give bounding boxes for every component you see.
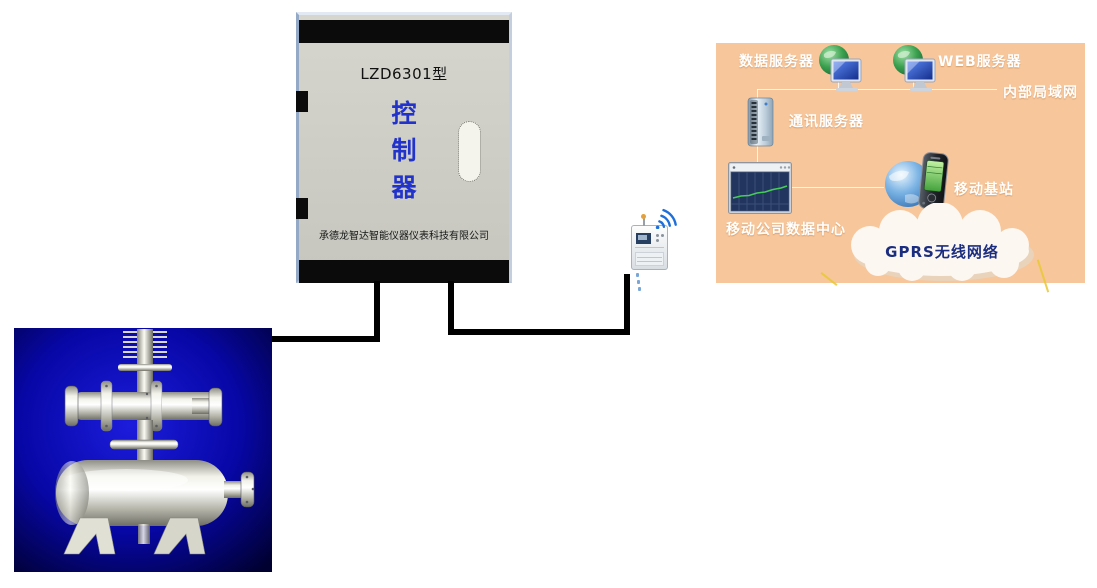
meter-lower-panel <box>635 252 664 266</box>
meter-button-icon <box>656 234 659 237</box>
label-data-center: 移动公司数据中心 <box>726 219 846 239</box>
company-name-label: 承德龙智达智能仪器仪表科技有限公司 <box>299 227 509 242</box>
meter-antenna-icon <box>643 218 645 226</box>
label-base-station: 移动基站 <box>954 179 1014 199</box>
meter-divider <box>637 257 662 258</box>
label-intranet: 内部局域网 <box>1003 82 1078 102</box>
meter-screen-glow <box>638 235 647 240</box>
cable-cabinet-to-meter-vertical <box>448 281 454 335</box>
signal-dash <box>636 273 639 277</box>
web-server-icon <box>892 44 936 92</box>
data-server-icon <box>818 44 862 92</box>
meter-divider <box>637 261 662 262</box>
label-data-server: 数据服务器 <box>739 51 814 71</box>
cable-meter-drop <box>624 274 630 335</box>
signal-dash <box>637 280 640 284</box>
cabinet-handle <box>458 121 481 182</box>
wireless-signal-icon <box>654 203 682 229</box>
data-center-icon <box>728 162 792 214</box>
cabinet-title-char: 器 <box>391 175 416 200</box>
meter-antenna-tip <box>641 214 646 219</box>
controller-cabinet: LZD6301型 控 制 器 承德龙智达智能仪器仪表科技有限公司 <box>296 12 512 283</box>
label-gprs-cloud: GPRS无线网络 <box>842 203 1042 287</box>
label-web-server: WEB服务器 <box>938 51 1022 71</box>
meter-button-icon <box>661 234 664 237</box>
cabinet-top-bar <box>299 20 509 43</box>
cable-cabinet-to-meter-horizontal <box>448 329 630 335</box>
flow-meter-image <box>14 328 272 572</box>
datacenter-basestation-line <box>792 187 884 188</box>
cabinet-bottom-bar <box>299 260 509 283</box>
system-diagram: LZD6301型 控 制 器 承德龙智达智能仪器仪表科技有限公司 <box>0 0 1097 588</box>
meter-button-icon <box>656 239 659 242</box>
meter-screen <box>636 233 651 244</box>
wireless-meter-device <box>631 225 668 270</box>
cabinet-title-char: 制 <box>391 138 416 163</box>
lan-line <box>757 89 997 90</box>
comm-server-icon <box>742 96 780 148</box>
label-comm-server: 通讯服务器 <box>789 111 864 131</box>
cabinet-hinge-icon <box>296 198 308 219</box>
cabinet-model-label: LZD6301型 <box>299 63 509 84</box>
cabinet-title-char: 控 <box>391 101 416 126</box>
lightning-streak-icon <box>821 272 838 286</box>
meter-divider <box>635 247 664 248</box>
signal-dash <box>638 287 641 291</box>
gprs-network-panel: 数据服务器 <box>716 43 1085 283</box>
cable-cabinet-to-flowmeter-vertical <box>374 281 380 342</box>
